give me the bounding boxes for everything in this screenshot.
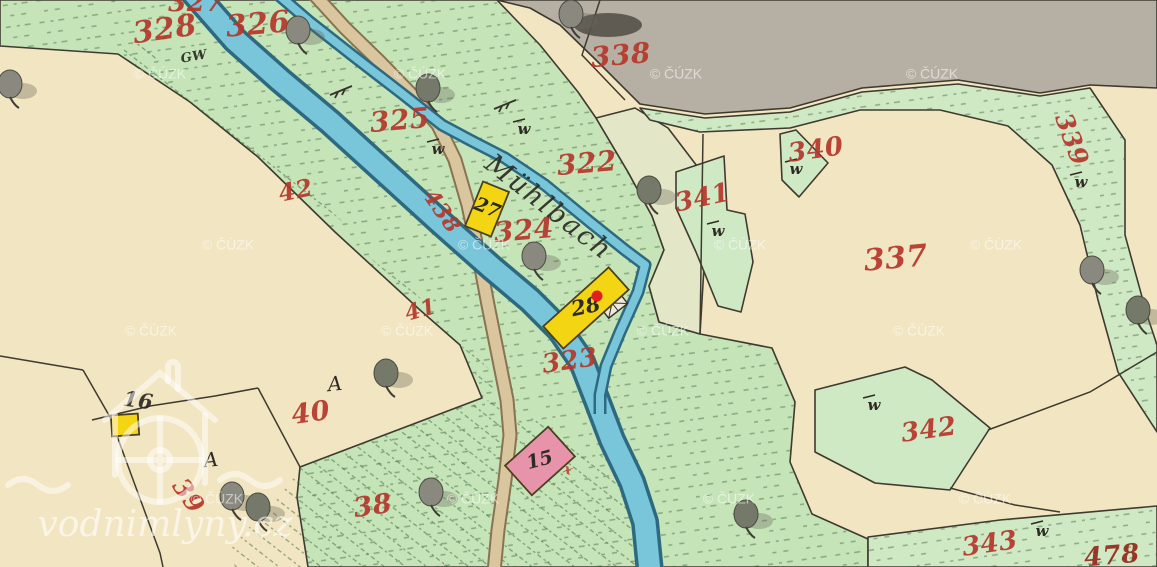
mill-marker-dot[interactable]	[592, 291, 603, 302]
cuzk-watermark: © ČÚZK	[714, 237, 767, 253]
cuzk-watermark: © ČÚZK	[125, 323, 178, 339]
parcel-number-label: 337	[862, 238, 929, 278]
cuzk-watermark: © ČÚZK	[650, 66, 703, 82]
cuzk-watermark: © ČÚZK	[202, 237, 255, 253]
parcel-number-label: 325	[369, 101, 432, 139]
parcel-number-label: 326	[224, 4, 291, 44]
parcel-number-label: 338	[590, 36, 653, 74]
cuzk-watermark: © ČÚZK	[458, 237, 511, 253]
cadastral-map-viewport[interactable]: 272815wwwwwwwAA3273283263253223244383234…	[0, 0, 1157, 567]
parcel-number-label: 322	[556, 144, 619, 182]
vodnimlyny-watermark: vodnimlyny.cz	[37, 504, 293, 545]
cuzk-watermark: © ČÚZK	[906, 66, 959, 82]
cuzk-watermark: © ČÚZK	[394, 66, 447, 82]
cuzk-watermark: © ČÚZK	[381, 323, 434, 339]
cuzk-watermark: © ČÚZK	[447, 491, 500, 507]
parcel-number-label: 38	[352, 488, 395, 524]
cuzk-watermark: © ČÚZK	[970, 237, 1023, 253]
cuzk-watermark: © ČÚZK	[134, 66, 187, 82]
cuzk-watermark: © ČÚZK	[893, 323, 946, 339]
svg-text:w: w	[868, 396, 882, 414]
cuzk-watermark: © ČÚZK	[703, 491, 756, 507]
svg-text:w: w	[432, 140, 446, 158]
cadastral-map: 272815wwwwwwwAA3273283263253223244383234…	[0, 0, 1157, 567]
svg-text:w: w	[518, 120, 532, 138]
cuzk-watermark: © ČÚZK	[959, 491, 1012, 507]
svg-text:w: w	[1075, 173, 1089, 191]
parcel-number-label: 40	[290, 395, 333, 431]
cuzk-watermark: © ČÚZK	[637, 323, 690, 339]
parcel-number-label: 478	[1083, 539, 1141, 567]
svg-text:w: w	[1036, 522, 1050, 540]
